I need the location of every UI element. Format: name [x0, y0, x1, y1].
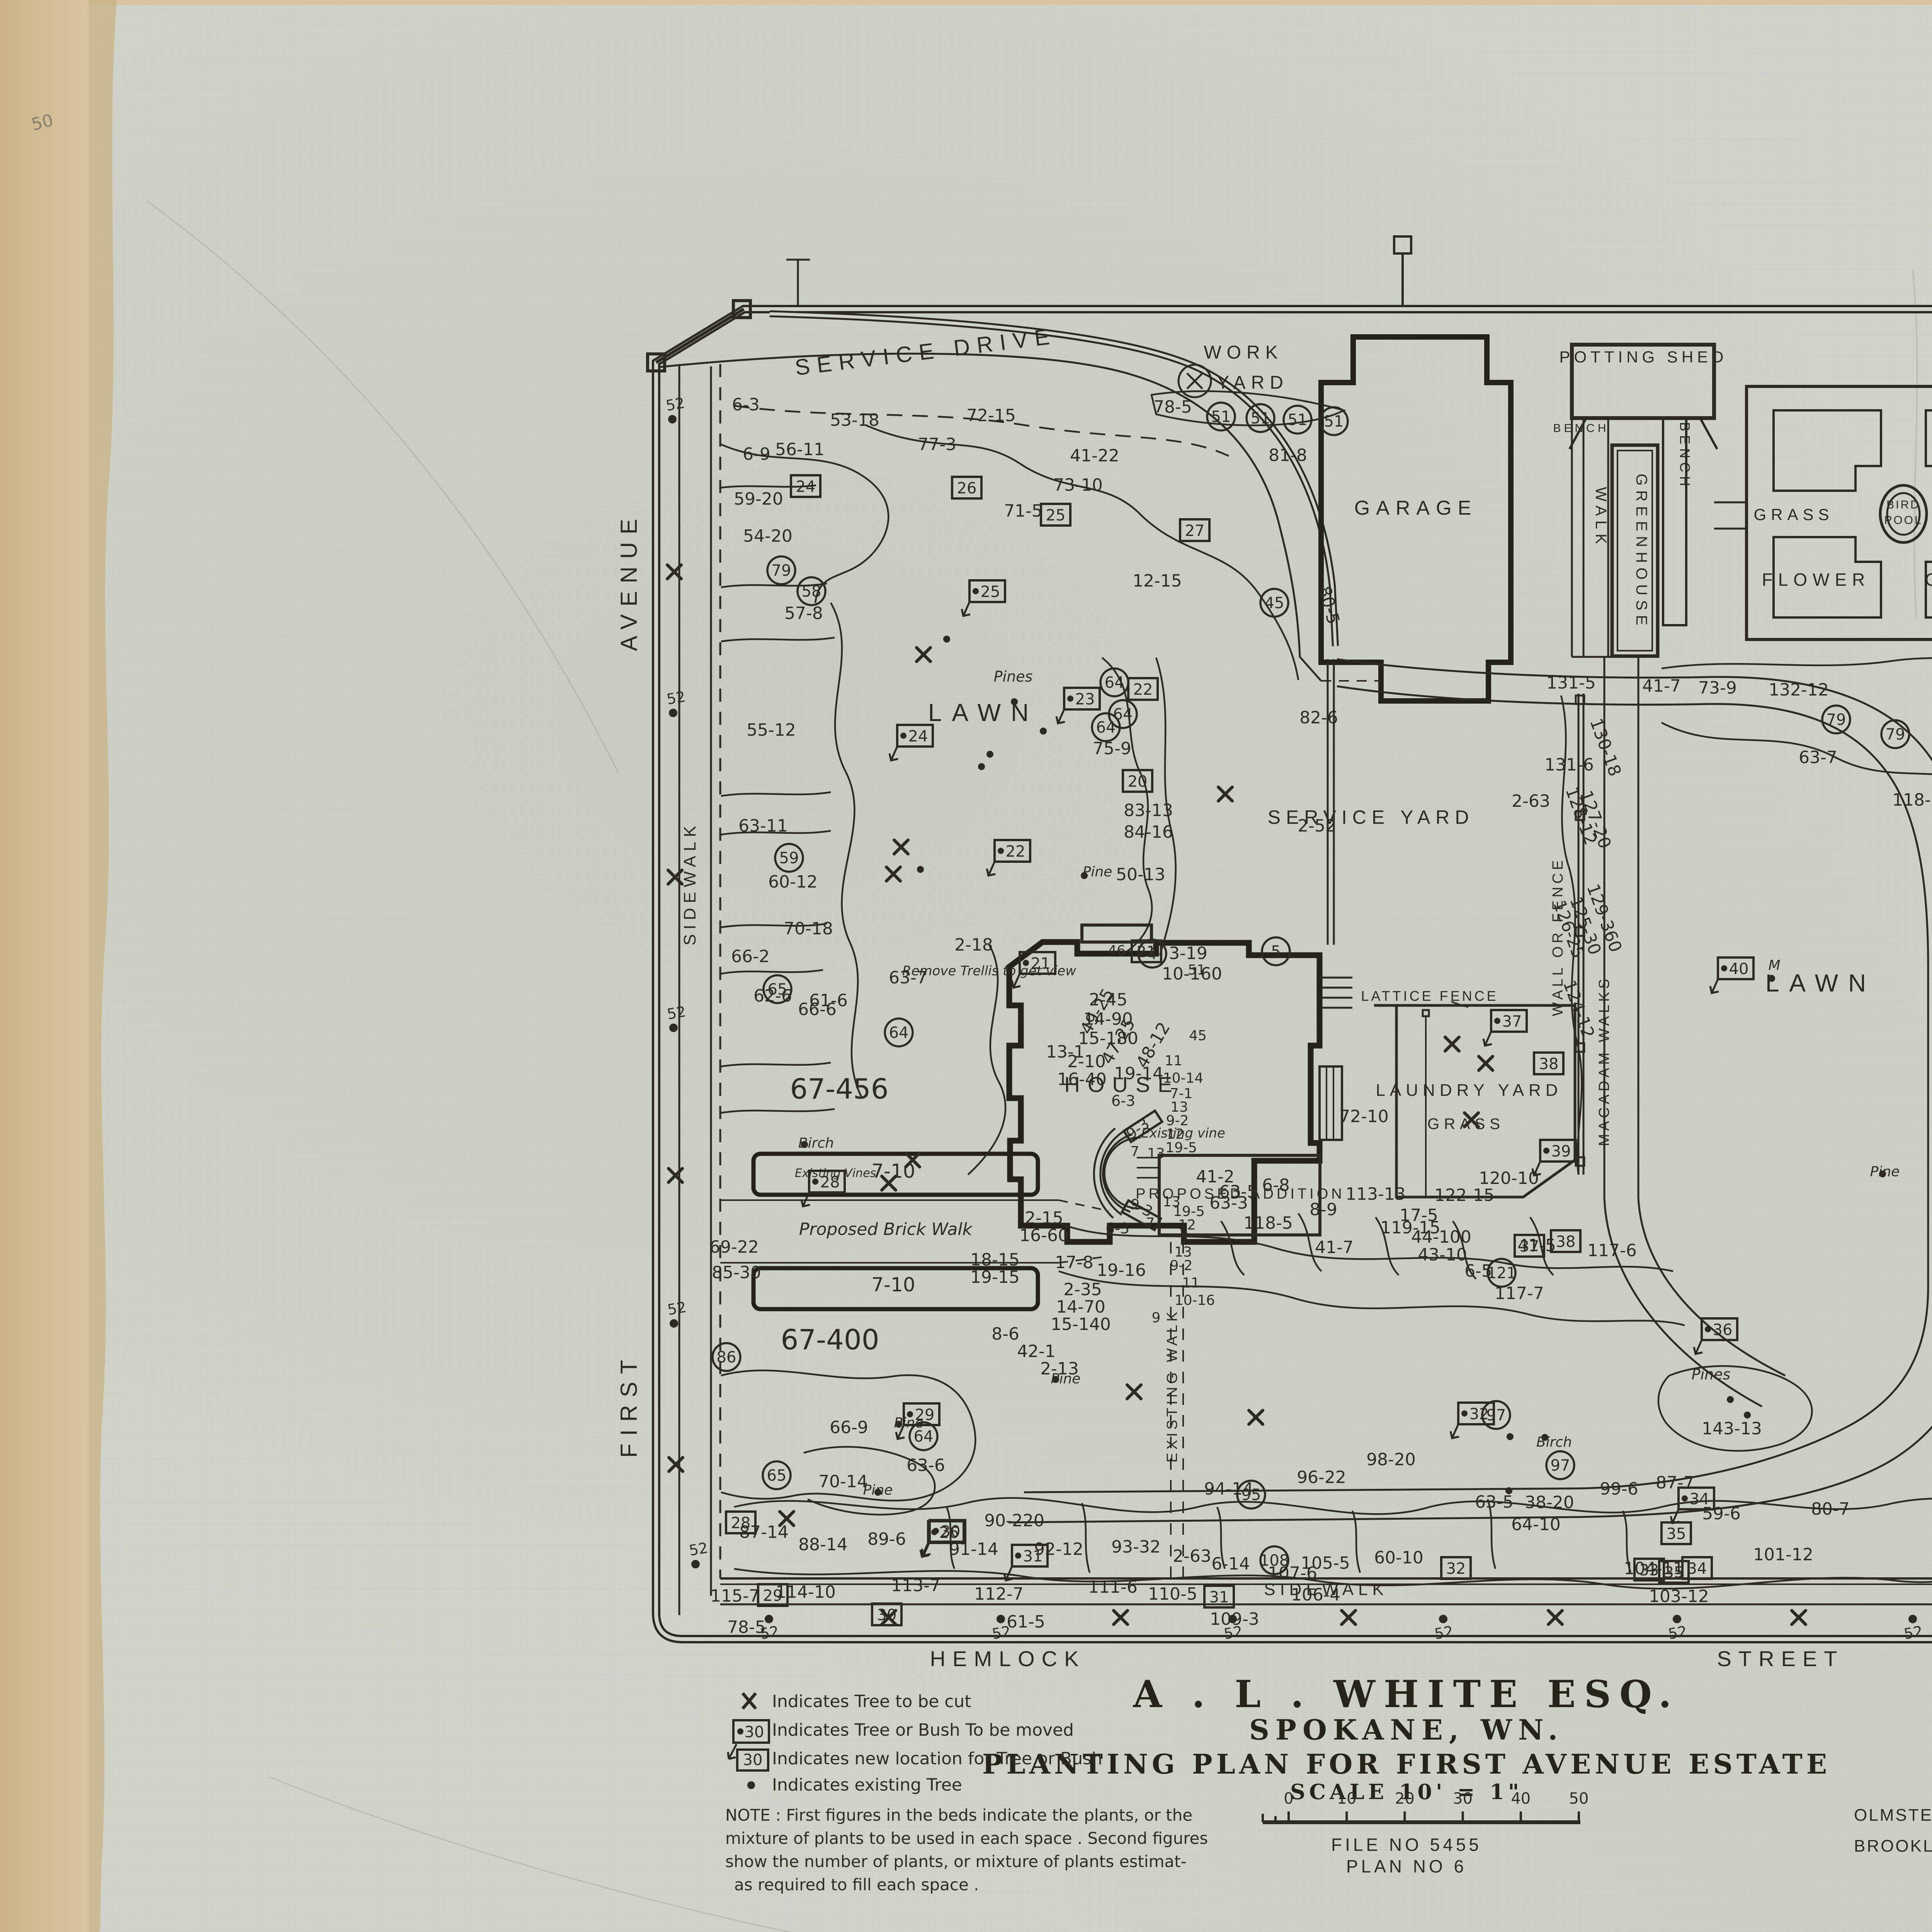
bed-label: 61-5 [1007, 1612, 1045, 1632]
boxed-marker-number: 32 [1446, 1560, 1466, 1578]
bed-label: 82-6 [1299, 708, 1338, 728]
legend-x-icon [743, 1693, 756, 1709]
bed-label: 112-7 [974, 1584, 1024, 1604]
bed-label: 98-20 [1366, 1450, 1416, 1469]
bed-label: 78-5 [1153, 397, 1192, 417]
credits-firm: OLMSTED BROTHERS - LANDSCAPE ARCHITECTS [1854, 1806, 1932, 1825]
circled-marker-number: 121 [1487, 1264, 1516, 1282]
circled-marker-number: 79 [1886, 726, 1905, 743]
boxed-marker-number: 37 [1520, 1238, 1539, 1255]
boxed-marker-number: 28 [820, 1173, 840, 1191]
legend-note-line: show the number of plants, or mixture of… [725, 1852, 1187, 1871]
marker-arrow [1671, 1509, 1679, 1523]
street-tree-number: 52 [688, 1539, 709, 1559]
label-laundry-yard: LAUNDRY YARD [1376, 1081, 1562, 1100]
circled-marker-number: 65 [768, 981, 787, 998]
bed-label: 111-6 [1088, 1577, 1138, 1597]
circled-marker-number: 65 [767, 1467, 787, 1485]
bed-label: 19-5 [1165, 1140, 1197, 1156]
bed-label: 2-52 [1298, 816, 1336, 836]
street-hemlock-street: STREET [1717, 1646, 1844, 1671]
tree-to-cut-x-icon [1342, 1611, 1355, 1624]
boxed-marker-number: 20 [1128, 773, 1148, 791]
label-flower: FLOWER [1762, 570, 1871, 590]
existing-tree-dot-icon [917, 866, 924, 873]
bed-label: 53-18 [830, 410, 879, 430]
moved-plant-dot [900, 733, 906, 739]
existing-tree-dot-icon [1744, 1412, 1751, 1418]
bed-label: 7 [1131, 1144, 1139, 1160]
label-potting-shed: POTTING SHED [1559, 348, 1727, 366]
bed-label: 60-10 [1374, 1548, 1423, 1568]
bed-label: 93-32 [1111, 1537, 1161, 1557]
tree-to-cut-x-icon [1127, 1385, 1141, 1399]
circled-marker-number: 58 [802, 583, 821, 600]
annotation-label: Pines [1692, 1366, 1731, 1383]
existing-tree-dot-icon [874, 1489, 881, 1496]
existing-tree-dot-icon [1228, 1615, 1237, 1623]
bed-label: 67-456 [790, 1073, 888, 1105]
tree-to-cut-x-icon [1114, 1611, 1128, 1624]
bed-label: 69-22 [709, 1237, 759, 1257]
bed-label: 131-6 [1544, 755, 1594, 775]
existing-tree-dot-icon [1040, 728, 1047, 735]
bed-label: 113-7 [891, 1576, 940, 1595]
bed-label: 66-9 [830, 1418, 868, 1437]
circled-marker-number: 97 [1486, 1406, 1506, 1424]
annotation-label: Proposed Brick Walk [799, 1219, 973, 1239]
bed-label: 63-5 [1475, 1492, 1514, 1512]
bed-label: 13 [1147, 1146, 1165, 1162]
circled-marker-number: 64 [889, 1024, 909, 1042]
boxed-marker-number: 38 [1556, 1233, 1576, 1251]
bed-label: 72-15 [966, 406, 1016, 425]
bed-label: 8-9 [1310, 1200, 1337, 1219]
bed-label: 51 [1188, 962, 1206, 978]
legend-dot-icon [747, 1781, 755, 1789]
boxed-marker-number: 26 [939, 1524, 959, 1542]
scale-bar-tick-label: 20 [1395, 1790, 1415, 1808]
legend-note-line: NOTE : First figures in the beds indicat… [725, 1806, 1192, 1825]
label-garden-grass: GRASS [1753, 505, 1833, 524]
bed-label: 71-5 [1004, 501, 1043, 521]
marker-arrow [1056, 709, 1065, 723]
existing-tree-dot-icon [1505, 1487, 1512, 1494]
scale-bar-tick-label: 0 [1284, 1790, 1293, 1808]
title-plan: PLANTING PLAN FOR FIRST AVENUE ESTATE [982, 1748, 1831, 1780]
boxed-marker-number: 31 [1023, 1548, 1043, 1565]
bed-label: 117-6 [1587, 1241, 1637, 1260]
boxed-marker-number: 34 [1690, 1490, 1709, 1508]
existing-tree-dot-icon [765, 1615, 773, 1623]
street-tree-number: 52 [666, 1003, 687, 1023]
boxed-marker-number: 25 [1046, 507, 1066, 524]
bed-label: 9-2 [1170, 1258, 1193, 1274]
tree-to-cut-x-icon [1548, 1611, 1562, 1624]
title-owner: A . L . WHITE ESQ. [1133, 1672, 1680, 1716]
moved-plant-dot [1461, 1410, 1468, 1417]
bed-label: 3-19 [1169, 944, 1207, 963]
tree-to-cut-x-icon [1792, 1611, 1806, 1624]
circled-marker-number: 5 [1271, 943, 1281, 961]
bed-label: 11 [1182, 1275, 1200, 1291]
bed-label: 12-15 [1133, 571, 1182, 591]
bed-label: 80-7 [1811, 1499, 1850, 1519]
bed-label: 54-20 [743, 526, 793, 546]
bed-label: 19-15 [970, 1267, 1020, 1287]
circled-marker-number: 45 [1265, 594, 1284, 612]
legend-boxed-number: 30 [743, 1751, 763, 1769]
bed-label: 18-15 [970, 1250, 1020, 1270]
marker-arrow [889, 747, 898, 760]
bed-label: 59-20 [734, 489, 783, 509]
moved-plant-dot [973, 588, 979, 594]
marker-arrow [1451, 1424, 1459, 1438]
boxed-marker-number: 36 [1713, 1321, 1733, 1339]
bed-label: 118-5 [1243, 1213, 1293, 1233]
label-work-yard-2: YARD [1217, 372, 1289, 393]
bed-label: 19-16 [1097, 1260, 1146, 1280]
circled-marker-number: 64 [914, 1428, 934, 1446]
label-existing-walk: EXISTING WALK [1164, 1309, 1180, 1463]
boxed-marker-number: 39 [1551, 1143, 1571, 1160]
boxed-marker-number: 29 [763, 1587, 783, 1605]
bed-label: 2-63 [1173, 1546, 1211, 1566]
existing-tree-dot-icon [1052, 1376, 1059, 1383]
bed-label: 88-14 [798, 1535, 848, 1554]
existing-tree-dot-icon [669, 709, 677, 717]
label-bench-2: BENCH [1553, 422, 1609, 435]
bed-label: 6-3 [1111, 1092, 1135, 1109]
bed-label: 2-15 [1025, 1208, 1063, 1228]
legend-note-line: as required to fill each space . [734, 1875, 979, 1894]
bed-label: 66-2 [731, 947, 770, 966]
bed-label: 66-6 [798, 1000, 837, 1019]
marker-arrow [1710, 979, 1719, 993]
bed-label: 106-4 [1291, 1585, 1340, 1605]
tree-to-cut-x-icon [669, 1458, 683, 1471]
existing-tree-dot-icon [1541, 1434, 1548, 1441]
bed-label: 81-8 [1269, 446, 1307, 465]
bed-label: 13-1 [1046, 1042, 1085, 1062]
moved-plant-dot [812, 1179, 818, 1185]
circled-marker-number: 79 [1827, 711, 1846, 729]
bed-label: 11 [1165, 1053, 1182, 1069]
bed-label: 105-5 [1301, 1553, 1350, 1573]
bed-label: 6-14 [1211, 1554, 1250, 1574]
bed-label: 67-400 [781, 1323, 879, 1356]
circled-marker-number: 97 [1551, 1457, 1570, 1475]
street-tree-number: 52 [759, 1622, 780, 1643]
street-first-avenue: AVENUE [616, 511, 642, 651]
bed-label: 2-63 [1512, 791, 1550, 811]
bed-label: 41-7 [1642, 676, 1681, 696]
bed-label: 113-13 [1345, 1184, 1406, 1204]
bed-label: 44-100 [1411, 1227, 1471, 1247]
existing-tree-dot-icon [1768, 975, 1775, 982]
bed-label: 73-9 [1698, 678, 1737, 698]
bed-label: 16-40 [1057, 1070, 1107, 1089]
circled-marker-number: 64 [1096, 719, 1116, 736]
street-tree-number: 52 [1903, 1622, 1924, 1643]
existing-tree-dot-icon [1908, 1615, 1917, 1623]
bed-label: 96-22 [1297, 1468, 1346, 1487]
legend-item-label: Indicates existing Tree [772, 1775, 962, 1795]
bed-label: 101-12 [1753, 1545, 1813, 1565]
bed-label: 10-16 [1175, 1293, 1215, 1308]
boxed-marker-number: 35 [1664, 1564, 1684, 1582]
annotation-label: Pines [994, 668, 1033, 685]
legend: Indicates Tree to be cut 30 Indicates Tr… [725, 1692, 1208, 1894]
bed-label: 2-18 [954, 935, 993, 955]
annotation-labels: Remove Trellis to get viewExisting vineE… [795, 668, 1900, 1498]
tree-to-cut-x-icon [668, 1168, 682, 1182]
label-garage: GARAGE [1354, 497, 1478, 519]
bed-label: 87-7 [1656, 1473, 1694, 1493]
bed-label: 46 [1108, 943, 1126, 959]
existing-tree-dot-icon [997, 1615, 1005, 1623]
bed-label: 8-6 [992, 1324, 1019, 1344]
bed-label: 118-13 [1892, 790, 1932, 810]
bed-label: 73-10 [1053, 475, 1103, 495]
boxed-marker-number: 22 [1006, 843, 1026, 861]
credits-block: OLMSTED BROTHERS - LANDSCAPE ARCHITECTS … [1854, 1806, 1932, 1932]
bed-label: 64-10 [1511, 1515, 1561, 1534]
existing-tree-dot-icon [670, 1319, 678, 1328]
circled-marker-number: 64 [1105, 674, 1124, 692]
scale-bar-tick-label: 50 [1569, 1790, 1589, 1808]
circled-marker-number: 108 [1260, 1552, 1289, 1570]
label-lattice-fence: LATTICE FENCE [1361, 988, 1498, 1004]
existing-tree-dot-icon [1879, 1170, 1886, 1177]
existing-tree-dot-icon [1081, 872, 1088, 879]
label-lawn-east: LAWN [1765, 969, 1876, 997]
bed-label: 41-22 [1070, 446, 1119, 466]
bed-label: 103-12 [1649, 1587, 1709, 1606]
circled-marker-number: 51 [1288, 411, 1308, 429]
boxed-marker-number: 26 [957, 480, 977, 497]
scale-bar-tick-label: 30 [1453, 1790, 1473, 1808]
title-plan-no: PLAN NO 6 [1346, 1856, 1467, 1876]
street-tree-number: 52 [666, 1298, 687, 1318]
bed-label: 90-220 [984, 1511, 1044, 1531]
circled-marker-number: 51 [1211, 408, 1231, 426]
street-tree-number: 52 [991, 1622, 1012, 1643]
circled-marker-number: 4 [1147, 945, 1157, 963]
credits-address: BROOKLINE MASS FEB. 14, 1912 [1854, 1837, 1932, 1855]
bed-label: 9 [1152, 1310, 1161, 1326]
existing-tree-dot-icon [1507, 1433, 1514, 1440]
bed-label: 110-5 [1148, 1584, 1197, 1604]
boxed-marker-number: 35 [1667, 1525, 1686, 1543]
bed-label: 38-20 [1525, 1493, 1574, 1512]
bed-label: 41-2 [1196, 1167, 1235, 1187]
existing-tree-dot-icon [978, 763, 985, 770]
moved-plant-dot [1705, 1326, 1711, 1332]
tree-to-cut-x-icon [1445, 1037, 1459, 1051]
marker-arrow [1694, 1340, 1702, 1354]
bed-label: 84-16 [1124, 822, 1173, 842]
existing-tree-dot-icon [1439, 1615, 1447, 1623]
circled-marker-number: 79 [772, 562, 791, 580]
legend-boxed-dot-number: 30 [745, 1723, 764, 1741]
circled-marker-number: 95 [1242, 1486, 1261, 1504]
bed-label: 17-5 [1400, 1206, 1438, 1225]
street-tree-number: 52 [665, 394, 686, 414]
moved-plant-dot [1721, 965, 1727, 971]
tree-to-cut-x-icon [894, 840, 908, 854]
existing-tree-dot-icon [801, 1141, 808, 1148]
moved-plant-dot [1682, 1495, 1688, 1502]
tree-to-cut-x-icon [1479, 1056, 1493, 1070]
bed-label: 6-8 [1262, 1175, 1290, 1195]
existing-tree-dot-icon [1673, 1615, 1681, 1623]
bed-label: 89-6 [867, 1529, 906, 1549]
bed-label: 122-15 [1434, 1185, 1495, 1205]
legend-item-label: Indicates new location for Tree or Bush [772, 1749, 1102, 1769]
title-file-no: FILE NO 5455 [1331, 1835, 1482, 1855]
moved-plant-dot [931, 1529, 937, 1535]
circled-marker-number: 86 [717, 1349, 736, 1366]
bed-label: 70-18 [784, 919, 833, 939]
bed-label: 2-35 [1063, 1280, 1102, 1299]
bed-label: 115-7 [710, 1586, 760, 1606]
existing-tree-dot-icon [668, 415, 677, 423]
bed-label: 41-7 [1315, 1238, 1354, 1257]
moved-plant-dot [1494, 1018, 1500, 1024]
boxed-marker-number: 24 [796, 478, 816, 496]
label-service-drive: SERVICE DRIVE [794, 323, 1058, 381]
boxed-marker-number: 29 [915, 1406, 935, 1424]
bed-label: 143-13 [1702, 1419, 1762, 1439]
label-bird-pool-1: BIRD [1886, 498, 1920, 511]
tree-to-cut-x-icon [1249, 1410, 1263, 1424]
tree-to-cut-x-icon [917, 648, 930, 662]
legend-item-label: Indicates Tree or Bush To be moved [772, 1720, 1074, 1740]
annotation-label: M [1768, 957, 1780, 973]
legend-item-label: Indicates Tree to be cut [772, 1692, 971, 1711]
scanned-plan-page: A . L . WHITE ESQ. SPOKANE, WN. PLANTING… [0, 0, 1932, 1932]
boxed-marker-number: 25 [981, 583, 1000, 601]
moved-plant-dot [998, 848, 1004, 854]
boxed-marker-number: 33 [1639, 1561, 1659, 1579]
bed-label: 15-140 [1051, 1315, 1111, 1334]
bed-label: 7 [1146, 1215, 1155, 1231]
bed-label: 57-8 [784, 604, 823, 623]
bed-label: 63-3 [1209, 1193, 1248, 1213]
existing-tree-dot-icon [691, 1560, 700, 1568]
title-city: SPOKANE, WN. [1249, 1713, 1564, 1746]
bed-label: 60-12 [768, 872, 818, 892]
bed-label: 99-6 [1600, 1479, 1638, 1499]
boxed-marker-number: 28 [731, 1514, 751, 1532]
boxed-marker-number: 37 [1502, 1013, 1522, 1031]
bed-label: 7-10 [871, 1274, 915, 1296]
label-lawn-west: LAWN [928, 699, 1039, 726]
bed-label: 77-3 [918, 435, 956, 454]
tree-to-cut-x-icon [1218, 787, 1232, 801]
bed-label: 10-14 [1163, 1070, 1204, 1086]
moved-plant-dot [907, 1411, 913, 1417]
boxed-marker-number: 24 [908, 728, 928, 745]
bed-label: 55-12 [747, 720, 796, 740]
existing-tree-dot-icon [1727, 1396, 1734, 1403]
street-tree-number: 52 [1223, 1622, 1244, 1643]
existing-tree-dot-icon [669, 1024, 678, 1032]
circled-marker-number: 64 [1113, 706, 1133, 723]
street-tree-number: 52 [1667, 1622, 1688, 1643]
annotation-label: Existing vine [1141, 1126, 1225, 1141]
marker-arrow [1483, 1032, 1492, 1046]
bed-label: 6-3 [732, 395, 760, 415]
bed-label: 17-8 [1055, 1253, 1094, 1272]
label-work-yard-1: WORK [1204, 342, 1283, 363]
label-bench-1: BENCH [1677, 422, 1693, 490]
tree-to-cut-x-icon [886, 867, 900, 881]
mat-mark: 50 [29, 111, 55, 135]
bed-label: 6-3 [1105, 1220, 1129, 1237]
bed-label: 70-14 [818, 1472, 868, 1492]
scale-bar-tick-label: 40 [1511, 1790, 1531, 1808]
plan-drawing: A . L . WHITE ESQ. SPOKANE, WN. PLANTING… [0, 0, 1932, 1932]
bed-label: 75-9 [1093, 739, 1131, 759]
bed-label: 6-9 [743, 444, 770, 464]
bed-label: 131-5 [1546, 673, 1596, 693]
existing-tree-dot-icon [895, 1421, 902, 1428]
label-bird-pool-2: POOL [1884, 514, 1922, 527]
bed-label: 45 [1189, 1028, 1207, 1044]
existing-tree-dot-icon [943, 636, 950, 643]
bed-label: 63-7 [1799, 748, 1837, 767]
boxed-marker-number: 22 [1133, 681, 1153, 699]
bed-label: 19-14 [1114, 1064, 1163, 1083]
moved-plant-dot [1543, 1148, 1549, 1154]
bed-label: 56-11 [775, 440, 825, 459]
bed-label: 43-10 [1418, 1245, 1467, 1265]
scale-bar-tick-label: 10 [1337, 1790, 1357, 1808]
bed-label: 16-60 [1019, 1226, 1069, 1245]
label-walk-greenhouse: WALK [1592, 487, 1609, 549]
circled-marker-number: 51 [1324, 413, 1344, 430]
bed-label: 14-70 [1056, 1297, 1105, 1317]
street-tree-number: 52 [1433, 1622, 1454, 1643]
bed-label: 63-11 [738, 816, 788, 836]
boxed-marker-number: 38 [1539, 1055, 1559, 1073]
bed-label: 72-10 [1339, 1107, 1389, 1126]
moved-plant-dot [1015, 1553, 1021, 1559]
bed-label: 85-30 [712, 1263, 761, 1282]
bed-label: 50-13 [1116, 865, 1165, 884]
street-hemlock: HEMLOCK [930, 1646, 1086, 1671]
moved-plant-dot [1023, 960, 1029, 966]
existing-tree-dot-icon [1011, 698, 1018, 705]
boxed-marker-number: 27 [1185, 522, 1205, 540]
legend-note-line: mixture of plants to be used in each spa… [725, 1829, 1208, 1848]
label-macadam-walks: MACADAM WALKS [1596, 976, 1612, 1146]
boxed-marker-number: 40 [1729, 960, 1749, 978]
label-greenhouse: GREENHOUSE [1633, 474, 1650, 630]
street-first: FIRST [616, 1352, 642, 1458]
boxed-marker-number: 31 [1209, 1588, 1229, 1606]
bed-label: 63-6 [906, 1456, 945, 1475]
boxed-marker-number: 34 [1687, 1560, 1707, 1578]
street-tree-number: 52 [665, 688, 687, 708]
existing-tree-dot-icon [986, 751, 993, 758]
boxed-marker-number: 21 [1031, 955, 1051, 973]
bed-label: 83-13 [1124, 801, 1173, 820]
moved-plant-dot [1067, 696, 1073, 702]
marker-arrow [962, 602, 970, 616]
